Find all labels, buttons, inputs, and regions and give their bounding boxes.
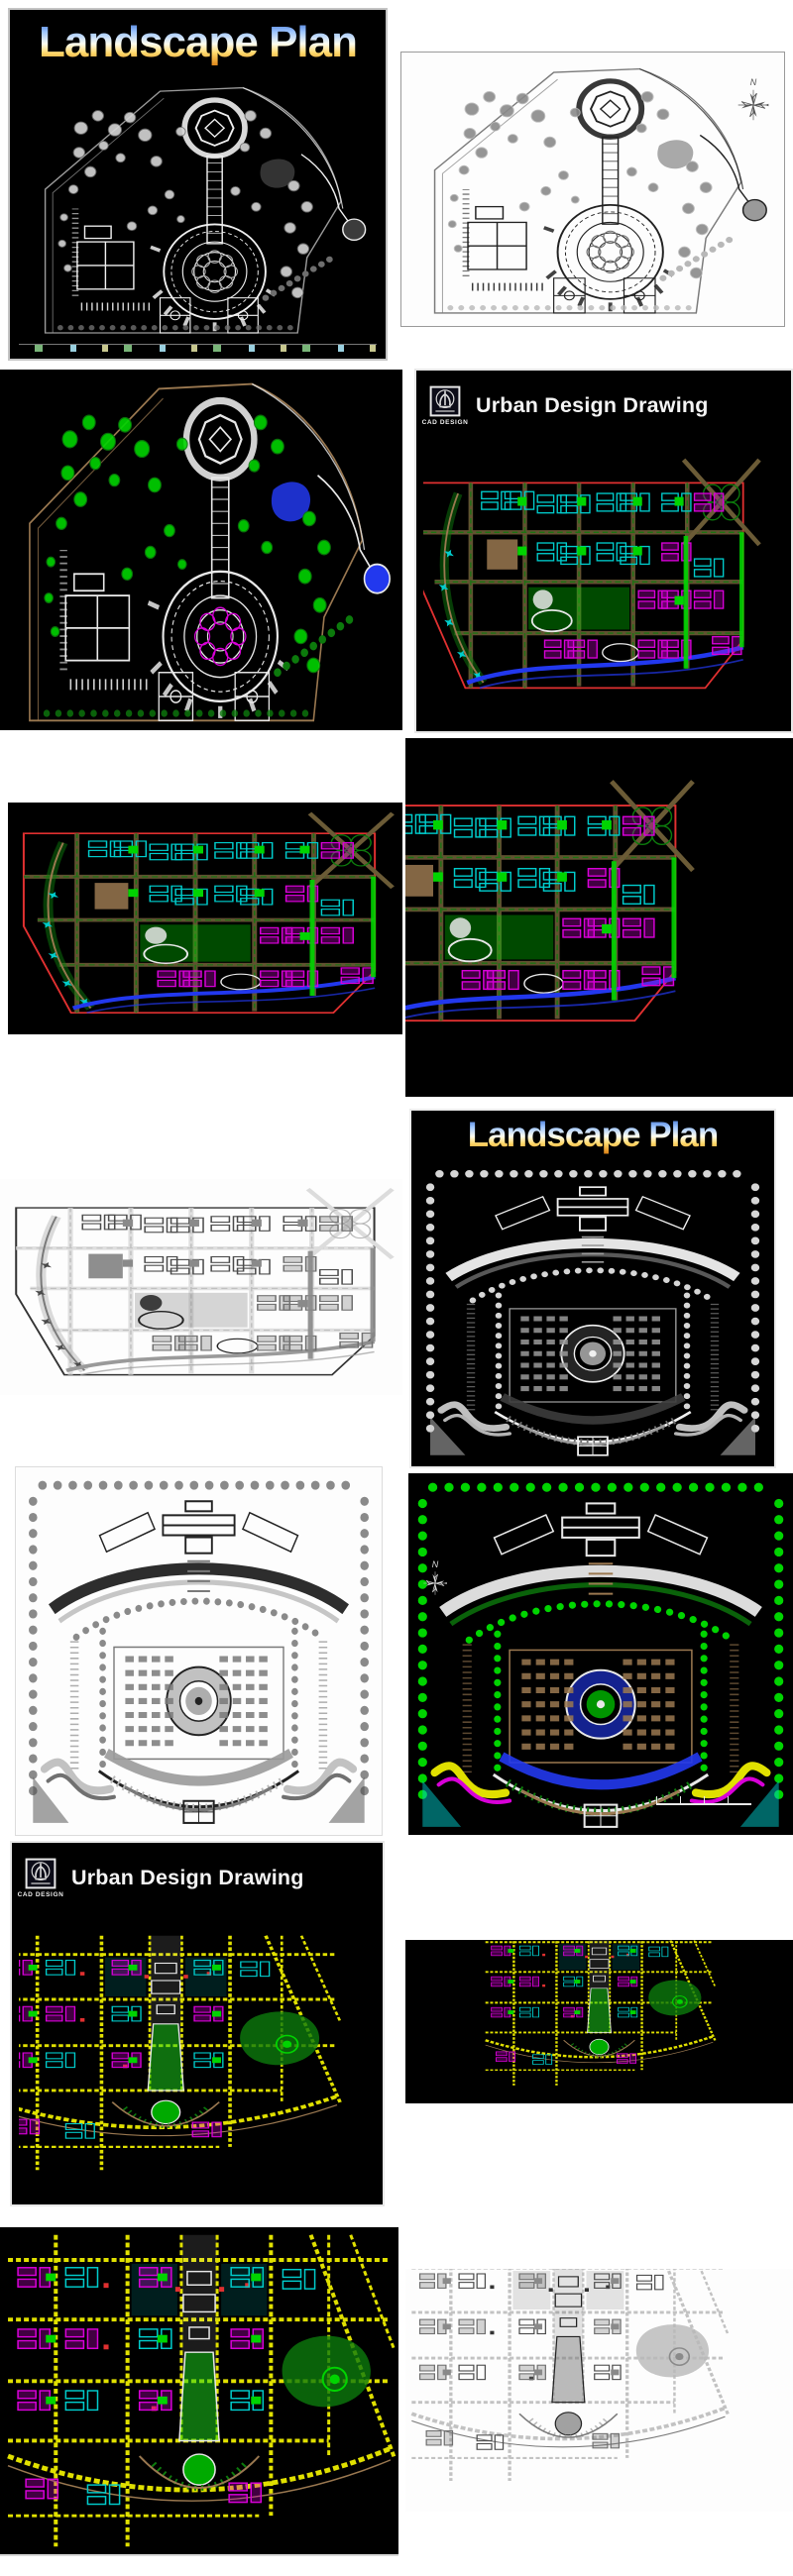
scale-bar — [656, 1796, 751, 1805]
north-compass-icon: N — [422, 1560, 448, 1596]
tile-plaza-plan-white — [15, 1466, 383, 1836]
cad-design-logo-text: CAD DESIGN — [18, 1891, 64, 1898]
title-block-data-strip — [19, 344, 377, 352]
tile-landscape-plan-dark: Landscape Plan — [8, 8, 388, 361]
north-compass-icon: N — [736, 78, 770, 122]
tile-plaza-plan-color: N — [408, 1473, 793, 1835]
urban-design-title: Urban Design Drawing — [476, 393, 709, 418]
tile-axis-city-wide — [405, 1940, 793, 2103]
park-plan-drawing — [0, 370, 402, 730]
city-grid-drawing — [0, 1179, 402, 1395]
tile-city-grid-tall — [405, 738, 793, 1097]
axis-city-drawing — [405, 2269, 793, 2512]
compass-north-label: N — [432, 1560, 439, 1569]
urban-design-header: CAD DESIGN Urban Design Drawing — [423, 377, 784, 433]
axis-city-drawing — [405, 1940, 793, 2103]
cad-design-logo-icon — [24, 1858, 57, 1889]
cad-design-logo-icon — [428, 385, 462, 417]
cad-collage-canvas: Landscape Plan N CAD DESIGN Urban Design… — [0, 0, 793, 2576]
tile-park-plan-color — [0, 370, 402, 730]
tile-city-grid-white — [0, 1179, 402, 1395]
landscape-plan-title: Landscape Plan — [417, 1118, 768, 1159]
tile-urban-design-axis-city: CAD DESIGN Urban Design Drawing — [10, 1841, 385, 2206]
compass-north-label: N — [750, 78, 757, 87]
tile-landscape-plan-plaza-dark: Landscape Plan — [409, 1109, 776, 1468]
tile-axis-city-full — [0, 2227, 398, 2556]
axis-city-drawing — [0, 2227, 398, 2554]
urban-design-title: Urban Design Drawing — [71, 1866, 304, 1890]
tile-city-grid-wide — [8, 803, 402, 1034]
plaza-plan-drawing — [408, 1473, 793, 1835]
city-grid-drawing — [423, 436, 784, 724]
park-plan-drawing — [19, 77, 377, 340]
cad-design-logo: CAD DESIGN — [423, 385, 467, 426]
axis-city-drawing — [19, 1908, 376, 2198]
city-grid-drawing — [8, 803, 402, 1034]
cad-design-logo-text: CAD DESIGN — [422, 419, 469, 426]
plaza-plan-drawing — [417, 1162, 768, 1462]
city-grid-drawing — [405, 738, 793, 1097]
tile-urban-design-city-grid: CAD DESIGN Urban Design Drawing — [414, 369, 793, 733]
tile-park-plan-white: N — [400, 52, 785, 327]
tile-axis-city-white — [405, 2269, 793, 2512]
park-plan-drawing — [407, 58, 778, 320]
cad-design-logo: CAD DESIGN — [19, 1858, 62, 1898]
urban-design-header: CAD DESIGN Urban Design Drawing — [19, 1850, 376, 1905]
plaza-plan-drawing — [20, 1471, 378, 1831]
landscape-plan-title: Landscape Plan — [19, 20, 377, 73]
